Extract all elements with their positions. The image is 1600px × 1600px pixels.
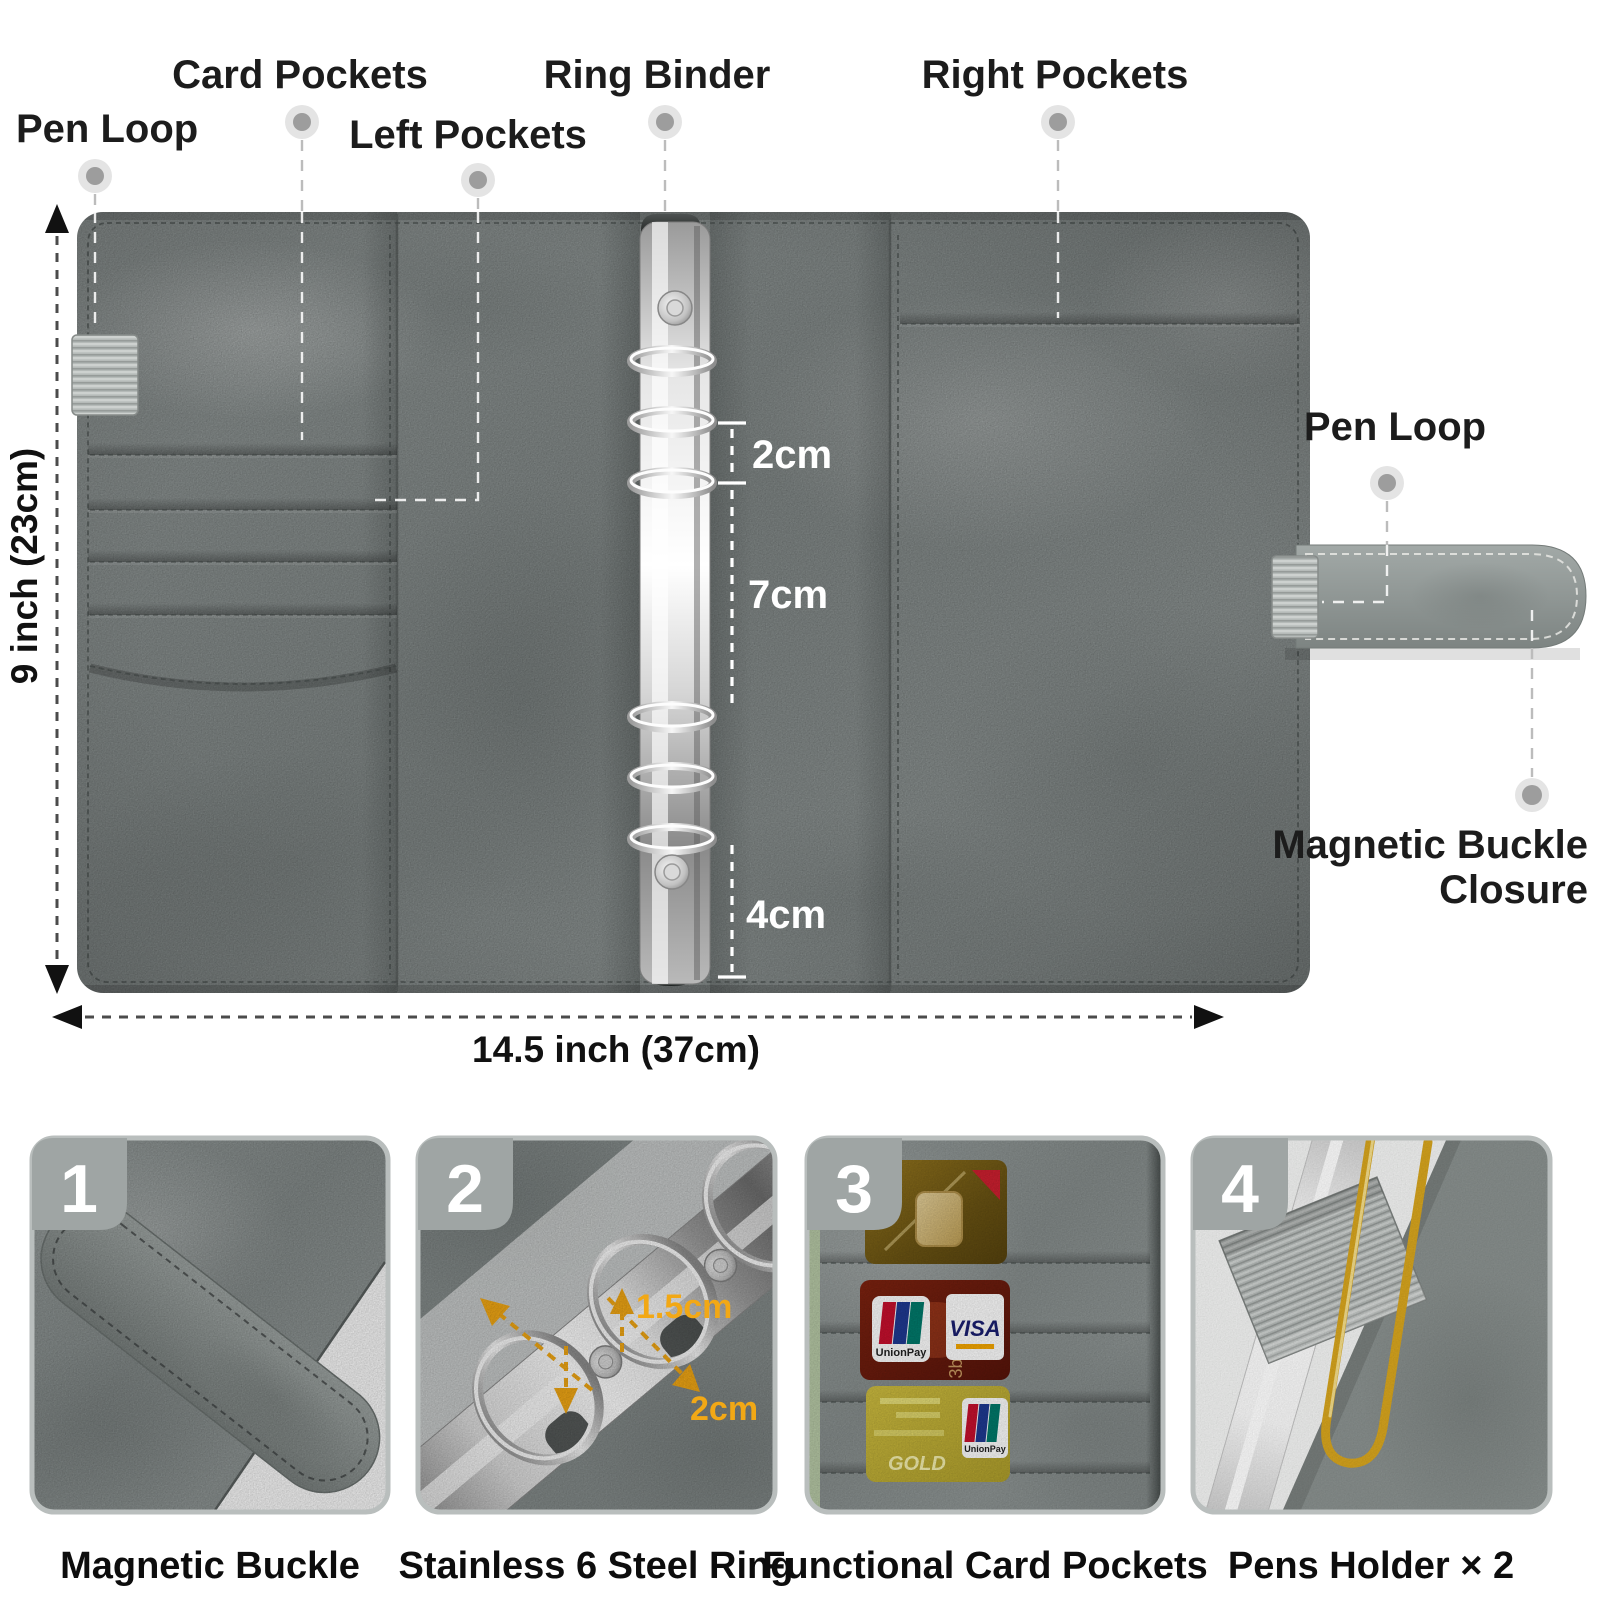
pen-loop-elastic-right [1272,556,1318,638]
width-dimension-label: 14.5 inch (37cm) [472,1029,760,1070]
feature-panel-2: 1.5cm 2cm 2 Stainless 6 Steel Ring [313,1043,881,1587]
ring-outer-measure: 2cm [690,1390,758,1428]
measure-4cm: 4cm [746,893,826,937]
height-dimension-label: 9 inch (23cm) [4,448,45,684]
callout-dot [1370,466,1404,500]
feature-panel-4: 4 Pens Holder × 2 [1193,1102,1580,1587]
caption-magnetic-buckle: Magnetic Buckle [60,1545,360,1587]
measure-7cm: 7cm [748,573,828,617]
spine-screw-top [658,291,692,325]
panel-number: 2 [446,1151,484,1227]
feature-panel-1: 1 Magnetic Buckle [0,1138,402,1587]
label-magnetic-buckle-closure: Magnetic Buckle Closure [1272,823,1588,912]
svg-text:Magnetic Buckle: Magnetic Buckle [1272,823,1588,867]
product-diagram: Pen Loop Card Pockets Left Pockets Ring … [0,0,1600,1600]
callout-dot [648,105,682,139]
caption-pens-holder: Pens Holder × 2 [1228,1545,1514,1587]
ring-binder-mechanism [631,214,713,986]
panel-number: 3 [835,1151,873,1227]
callout-dot [285,105,319,139]
feature-panel-3: UnionPay 3b 7b VISA GOLD [762,1138,1208,1587]
diagram-canvas: Pen Loop Card Pockets Left Pockets Ring … [0,0,1600,1600]
closure-strap [1272,545,1586,660]
label-right-pockets: Right Pockets [922,53,1189,97]
callout-dot [78,159,112,193]
label-pen-loop-right: Pen Loop [1304,405,1486,449]
label-left-pockets: Left Pockets [349,113,587,157]
svg-text:Closure: Closure [1439,868,1588,912]
label-ring-binder: Ring Binder [544,53,771,97]
callout-dot [1041,105,1075,139]
panel-number: 4 [1221,1151,1259,1227]
caption-card-pockets: Functional Card Pockets [762,1545,1208,1587]
ring-inner-measure: 1.5cm [636,1288,732,1326]
label-pen-loop-left: Pen Loop [16,107,198,151]
measure-2cm: 2cm [752,433,832,477]
pen-loop-elastic-left [72,335,138,415]
panel-number: 1 [60,1151,98,1227]
label-card-pockets: Card Pockets [172,53,428,97]
width-dimension: 14.5 inch (37cm) [52,1005,1224,1070]
callout-dot [1515,778,1549,812]
spine-screw-bottom [655,855,689,889]
caption-steel-ring: Stainless 6 Steel Ring [399,1545,794,1587]
height-dimension: 9 inch (23cm) [4,204,69,994]
callout-dot [461,163,495,197]
